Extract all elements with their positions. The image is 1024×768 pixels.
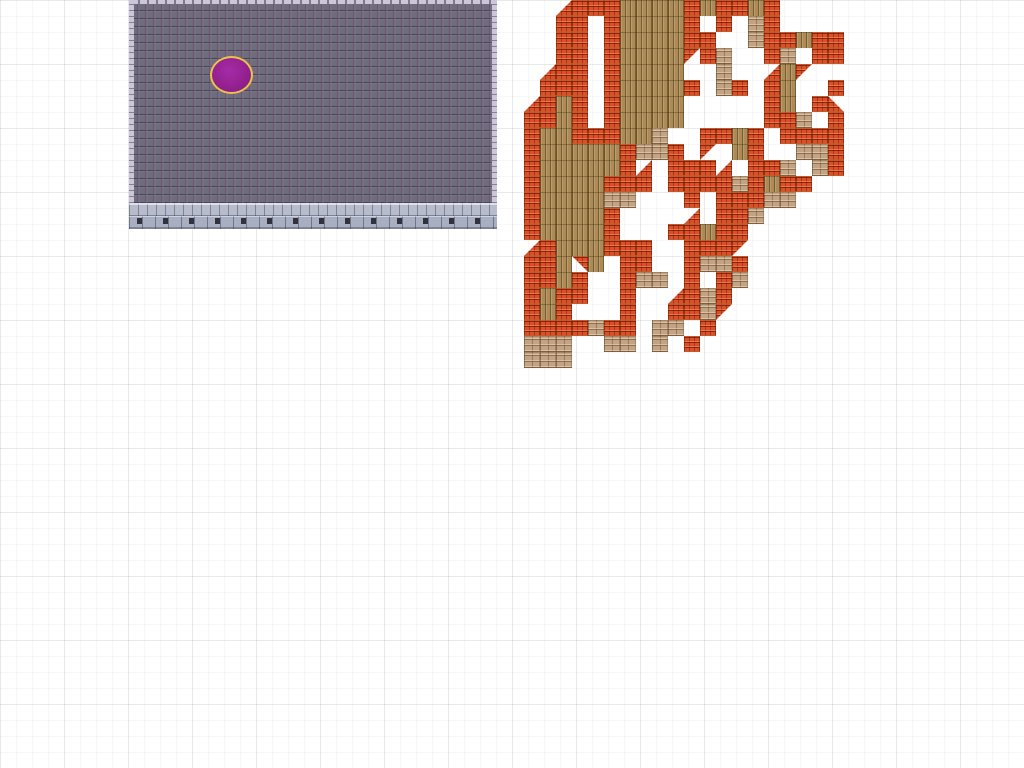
map-tile-empty — [812, 112, 828, 128]
wall-base-lower-course — [129, 216, 497, 229]
map-tile-orange-brick-roof — [572, 80, 588, 96]
map-tile-wood-planks — [572, 208, 588, 224]
map-tile-wood-planks — [556, 224, 572, 240]
map-tile-empty — [732, 160, 748, 176]
map-tile-empty — [572, 336, 588, 352]
map-tile-orange-brick-roof — [684, 80, 700, 96]
map-tile-empty — [764, 304, 780, 320]
map-tile-orange-brick-roof — [604, 16, 620, 32]
map-tile-empty — [796, 0, 812, 16]
map-tile-empty — [828, 352, 844, 368]
map-tile-orange-brick-roof — [764, 160, 780, 176]
map-tile-tan-stone-bricks — [604, 336, 620, 352]
map-tile-orange-brick-roof — [684, 304, 700, 320]
map-tile-wood-planks — [540, 192, 556, 208]
map-tile-tan-stone-bricks — [716, 64, 732, 80]
map-tile-brick-diagonal-cut-top-left — [524, 96, 540, 112]
map-tile-wood-planks — [556, 272, 572, 288]
map-tile-orange-brick-roof — [572, 272, 588, 288]
map-tile-orange-brick-roof — [524, 208, 540, 224]
map-tile-empty — [604, 304, 620, 320]
map-tile-orange-brick-roof — [524, 256, 540, 272]
map-tile-wood-planks — [636, 32, 652, 48]
map-tile-orange-brick-roof — [524, 288, 540, 304]
map-tile-empty — [828, 16, 844, 32]
map-tile-empty — [812, 256, 828, 272]
map-tile-empty — [780, 240, 796, 256]
map-tile-tan-stone-bricks — [748, 208, 764, 224]
map-tile-empty — [812, 352, 828, 368]
map-tile-wood-planks — [620, 96, 636, 112]
map-tile-empty — [748, 224, 764, 240]
map-tile-empty — [716, 336, 732, 352]
map-tile-orange-brick-roof — [604, 240, 620, 256]
map-tile-wood-planks — [652, 16, 668, 32]
map-tile-tan-stone-bricks — [764, 192, 780, 208]
map-tile-tan-stone-bricks — [668, 320, 684, 336]
map-tile-empty — [668, 240, 684, 256]
map-tile-empty — [764, 144, 780, 160]
map-tile-empty — [540, 0, 556, 16]
map-tile-orange-brick-roof — [748, 160, 764, 176]
map-tile-orange-brick-roof — [796, 128, 812, 144]
map-tile-orange-brick-roof — [796, 176, 812, 192]
map-tile-brick-diagonal-cut-bottom-right — [684, 48, 700, 64]
map-tile-orange-brick-roof — [524, 128, 540, 144]
map-tile-tan-stone-bricks — [652, 320, 668, 336]
map-tile-orange-brick-roof — [828, 160, 844, 176]
map-tile-empty — [780, 224, 796, 240]
map-tile-wood-planks — [652, 96, 668, 112]
map-tile-empty — [764, 256, 780, 272]
map-tile-empty — [668, 208, 684, 224]
map-tile-orange-brick-roof — [620, 320, 636, 336]
map-tile-orange-brick-roof — [556, 48, 572, 64]
map-tile-wood-planks — [556, 144, 572, 160]
map-tile-orange-brick-roof — [716, 208, 732, 224]
map-tile-wood-planks — [620, 16, 636, 32]
map-tile-empty — [780, 144, 796, 160]
map-tile-empty — [812, 320, 828, 336]
map-tile-orange-brick-roof — [764, 0, 780, 16]
map-tile-empty — [796, 192, 812, 208]
map-tile-empty — [796, 80, 812, 96]
map-tile-tan-stone-bricks — [620, 336, 636, 352]
map-tile-empty — [796, 48, 812, 64]
map-tile-empty — [700, 192, 716, 208]
map-tile-orange-brick-roof — [604, 0, 620, 16]
map-tile-orange-brick-roof — [572, 0, 588, 16]
map-tile-orange-brick-roof — [748, 128, 764, 144]
map-tile-orange-brick-roof — [604, 128, 620, 144]
map-tile-orange-brick-roof — [540, 256, 556, 272]
map-tile-empty — [812, 176, 828, 192]
map-tile-empty — [604, 352, 620, 368]
map-tile-empty — [812, 304, 828, 320]
map-tile-wood-planks — [636, 128, 652, 144]
map-tile-empty — [764, 320, 780, 336]
map-tile-wood-planks — [588, 224, 604, 240]
map-tile-orange-brick-roof — [700, 240, 716, 256]
map-tile-orange-brick-roof — [524, 224, 540, 240]
wall-left-edge — [129, 0, 134, 203]
map-tile-tan-stone-bricks — [620, 192, 636, 208]
map-tile-empty — [812, 16, 828, 32]
map-tile-empty — [796, 288, 812, 304]
map-tile-orange-brick-roof — [524, 304, 540, 320]
map-tile-orange-brick-roof — [748, 176, 764, 192]
map-tile-tan-stone-bricks — [556, 352, 572, 368]
map-tile-empty — [652, 192, 668, 208]
map-tile-tan-stone-bricks — [700, 256, 716, 272]
map-tile-empty — [668, 272, 684, 288]
map-tile-tan-stone-bricks — [796, 112, 812, 128]
map-tile-empty — [780, 16, 796, 32]
map-tile-orange-brick-roof — [732, 0, 748, 16]
map-tile-orange-brick-roof — [716, 0, 732, 16]
map-tile-orange-brick-roof — [572, 320, 588, 336]
map-tile-orange-brick-roof — [828, 80, 844, 96]
map-tile-wood-planks — [572, 144, 588, 160]
map-tile-empty — [812, 240, 828, 256]
map-tile-orange-brick-roof — [684, 16, 700, 32]
map-tile-tan-stone-bricks — [700, 288, 716, 304]
map-tile-empty — [828, 272, 844, 288]
map-tile-empty — [812, 208, 828, 224]
map-tile-empty — [668, 256, 684, 272]
map-tile-wood-planks — [748, 0, 764, 16]
map-tile-empty — [828, 304, 844, 320]
map-tile-empty — [748, 320, 764, 336]
map-tile-orange-brick-roof — [604, 112, 620, 128]
map-tile-empty — [588, 352, 604, 368]
map-tile-empty — [588, 64, 604, 80]
map-tile-empty — [636, 224, 652, 240]
map-tile-orange-brick-roof — [524, 272, 540, 288]
map-tile-wood-planks — [764, 176, 780, 192]
map-tile-empty — [732, 352, 748, 368]
map-tile-empty — [796, 320, 812, 336]
map-tile-empty — [700, 336, 716, 352]
map-tile-wood-planks — [620, 32, 636, 48]
map-tile-wood-planks — [572, 192, 588, 208]
map-tile-orange-brick-roof — [620, 256, 636, 272]
map-tile-orange-brick-roof — [700, 48, 716, 64]
map-tile-orange-brick-roof — [540, 320, 556, 336]
map-tile-wood-planks — [668, 48, 684, 64]
map-tile-empty — [588, 112, 604, 128]
map-tile-orange-brick-roof — [556, 320, 572, 336]
map-tile-orange-brick-roof — [572, 288, 588, 304]
map-tile-wood-planks — [588, 240, 604, 256]
map-tile-empty — [636, 304, 652, 320]
map-tile-orange-brick-roof — [556, 64, 572, 80]
map-tile-wood-planks — [540, 208, 556, 224]
map-tile-brick-diagonal-cut-bottom-right — [732, 240, 748, 256]
map-tile-empty — [780, 320, 796, 336]
map-tile-wood-planks — [540, 144, 556, 160]
wall-base-upper-course — [129, 203, 497, 216]
map-tile-empty — [732, 320, 748, 336]
map-tile-empty — [652, 160, 668, 176]
map-tile-empty — [588, 96, 604, 112]
map-tile-wood-planks — [636, 112, 652, 128]
map-tile-tan-stone-bricks — [652, 336, 668, 352]
map-tile-orange-brick-roof — [572, 64, 588, 80]
map-tile-wood-planks — [572, 224, 588, 240]
map-tile-orange-brick-roof — [524, 160, 540, 176]
map-tile-empty — [748, 256, 764, 272]
map-tile-wood-planks — [780, 96, 796, 112]
map-tile-wood-planks — [668, 16, 684, 32]
map-tile-empty — [828, 320, 844, 336]
map-tile-tan-stone-bricks — [540, 336, 556, 352]
map-tile-empty — [604, 256, 620, 272]
map-tile-wood-planks — [540, 176, 556, 192]
map-tile-empty — [588, 272, 604, 288]
map-tile-empty — [748, 336, 764, 352]
map-tile-empty — [780, 336, 796, 352]
map-tile-empty — [716, 352, 732, 368]
map-tile-empty — [652, 304, 668, 320]
map-tile-tan-stone-bricks — [540, 352, 556, 368]
map-tile-orange-brick-roof — [524, 112, 540, 128]
map-tile-orange-brick-roof — [540, 112, 556, 128]
map-tile-wood-planks — [652, 0, 668, 16]
map-tile-orange-brick-roof — [828, 144, 844, 160]
map-tile-empty — [524, 64, 540, 80]
map-tile-orange-brick-roof — [604, 208, 620, 224]
map-tile-wood-planks — [540, 304, 556, 320]
map-tile-wood-planks — [588, 256, 604, 272]
map-tile-orange-brick-roof — [716, 240, 732, 256]
wall-brick-fill — [129, 0, 497, 203]
map-tile-wood-planks — [556, 240, 572, 256]
map-tile-empty — [716, 112, 732, 128]
map-tile-empty — [636, 352, 652, 368]
map-tile-orange-brick-roof — [764, 16, 780, 32]
map-tile-wood-planks — [588, 192, 604, 208]
map-tile-empty — [748, 352, 764, 368]
map-tile-orange-brick-roof — [540, 96, 556, 112]
map-tile-wood-planks — [636, 80, 652, 96]
map-tile-brick-diagonal-cut-top-left — [668, 288, 684, 304]
map-tile-empty — [652, 224, 668, 240]
map-tile-wood-planks — [620, 80, 636, 96]
map-tile-wood-planks — [636, 16, 652, 32]
map-tile-tan-stone-bricks — [780, 48, 796, 64]
map-tile-orange-brick-roof — [716, 192, 732, 208]
map-tile-empty — [524, 32, 540, 48]
map-tile-empty — [812, 80, 828, 96]
map-tile-wood-planks — [700, 0, 716, 16]
map-tile-empty — [572, 352, 588, 368]
map-tile-empty — [604, 272, 620, 288]
map-tile-empty — [796, 160, 812, 176]
map-tile-orange-brick-roof — [684, 32, 700, 48]
map-tile-empty — [828, 192, 844, 208]
map-tile-empty — [732, 48, 748, 64]
map-tile-tan-stone-bricks — [732, 176, 748, 192]
map-tile-brick-diagonal-cut-top-left — [764, 64, 780, 80]
map-tile-empty — [684, 352, 700, 368]
map-tile-tan-stone-bricks — [716, 256, 732, 272]
map-tile-orange-brick-roof — [684, 0, 700, 16]
map-tile-orange-brick-roof — [732, 256, 748, 272]
map-tile-wood-planks — [604, 144, 620, 160]
map-tile-orange-brick-roof — [684, 288, 700, 304]
map-tile-orange-brick-roof — [572, 48, 588, 64]
map-tile-empty — [588, 336, 604, 352]
map-tile-orange-brick-roof — [556, 304, 572, 320]
map-tile-empty — [732, 112, 748, 128]
map-tile-orange-brick-roof — [732, 208, 748, 224]
purple-ellipse-object[interactable] — [210, 56, 253, 94]
map-tile-orange-brick-roof — [620, 160, 636, 176]
map-tile-brick-diagonal-cut-bottom-right — [700, 144, 716, 160]
map-tile-orange-brick-roof — [828, 112, 844, 128]
map-tile-tan-stone-bricks — [812, 144, 828, 160]
map-tile-orange-brick-roof — [604, 48, 620, 64]
map-tile-orange-brick-roof — [668, 224, 684, 240]
map-tile-empty — [796, 256, 812, 272]
map-tile-orange-brick-roof — [668, 304, 684, 320]
map-tile-wood-planks — [668, 80, 684, 96]
map-tile-orange-brick-roof — [668, 144, 684, 160]
map-tile-orange-brick-roof — [540, 240, 556, 256]
map-tile-wood-planks — [652, 32, 668, 48]
map-tile-tan-stone-bricks — [780, 192, 796, 208]
map-tile-empty — [700, 16, 716, 32]
map-tile-orange-brick-roof — [764, 48, 780, 64]
map-tile-tan-stone-bricks — [524, 336, 540, 352]
map-tile-orange-brick-roof — [604, 32, 620, 48]
map-tile-tan-stone-bricks — [636, 272, 652, 288]
map-tile-wood-planks — [572, 160, 588, 176]
map-tile-orange-brick-roof — [636, 256, 652, 272]
map-tile-wood-planks — [604, 160, 620, 176]
map-tile-orange-brick-roof — [700, 320, 716, 336]
map-tile-empty — [780, 304, 796, 320]
map-tile-empty — [732, 96, 748, 112]
map-tile-orange-brick-roof — [684, 176, 700, 192]
map-tile-wood-planks — [636, 0, 652, 16]
map-tile-wood-planks — [780, 80, 796, 96]
map-tile-wood-planks — [556, 208, 572, 224]
roof-tiles-chunk[interactable] — [524, 0, 844, 368]
stone-wall-chunk[interactable] — [129, 0, 497, 229]
map-tile-orange-brick-roof — [556, 32, 572, 48]
map-tile-orange-brick-roof — [604, 176, 620, 192]
map-tile-wood-planks — [668, 0, 684, 16]
map-tile-empty — [700, 352, 716, 368]
map-tile-tan-stone-bricks — [716, 80, 732, 96]
map-tile-empty — [780, 288, 796, 304]
map-tile-empty — [572, 304, 588, 320]
map-tile-wood-planks — [668, 32, 684, 48]
map-tile-empty — [764, 272, 780, 288]
map-tile-orange-brick-roof — [684, 192, 700, 208]
map-tile-empty — [764, 224, 780, 240]
map-tile-orange-brick-roof — [668, 160, 684, 176]
map-tile-orange-brick-roof — [732, 224, 748, 240]
map-tile-empty — [748, 64, 764, 80]
map-tile-wood-planks — [636, 48, 652, 64]
map-tile-orange-brick-roof — [828, 32, 844, 48]
map-tile-orange-brick-roof — [764, 96, 780, 112]
map-tile-empty — [812, 64, 828, 80]
map-tile-orange-brick-roof — [572, 128, 588, 144]
map-tile-orange-brick-roof — [700, 32, 716, 48]
map-tile-empty — [700, 112, 716, 128]
map-tile-orange-brick-roof — [572, 96, 588, 112]
map-tile-empty — [716, 144, 732, 160]
map-tile-empty — [732, 16, 748, 32]
map-tile-empty — [668, 128, 684, 144]
map-tile-orange-brick-roof — [716, 16, 732, 32]
map-tile-empty — [796, 336, 812, 352]
map-tile-orange-brick-roof — [716, 224, 732, 240]
map-tile-orange-brick-roof — [620, 304, 636, 320]
map-tile-orange-brick-roof — [604, 80, 620, 96]
map-tile-empty — [732, 32, 748, 48]
map-tile-wood-planks — [668, 64, 684, 80]
map-tile-orange-brick-roof — [780, 128, 796, 144]
map-tile-wood-planks — [620, 0, 636, 16]
map-tile-empty — [828, 176, 844, 192]
map-tile-empty — [684, 64, 700, 80]
map-tile-orange-brick-roof — [684, 256, 700, 272]
map-tile-wood-planks — [780, 64, 796, 80]
map-tile-empty — [796, 208, 812, 224]
map-tile-tan-stone-bricks — [700, 304, 716, 320]
map-tile-orange-brick-roof — [716, 176, 732, 192]
map-tile-empty — [828, 0, 844, 16]
map-tile-empty — [636, 192, 652, 208]
map-tile-orange-brick-roof — [732, 192, 748, 208]
map-tile-orange-brick-roof — [764, 80, 780, 96]
map-tile-empty — [652, 352, 668, 368]
map-tile-empty — [700, 208, 716, 224]
map-tile-orange-brick-roof — [812, 96, 828, 112]
map-tile-brick-diagonal-cut-bottom-right — [796, 64, 812, 80]
map-tile-empty — [828, 288, 844, 304]
map-tile-empty — [588, 48, 604, 64]
map-tile-empty — [764, 208, 780, 224]
map-tile-orange-brick-roof — [716, 128, 732, 144]
map-canvas[interactable] — [0, 0, 1024, 768]
map-tile-wood-planks — [588, 144, 604, 160]
map-tile-orange-brick-roof — [684, 240, 700, 256]
map-tile-brick-diagonal-cut-top-left — [556, 0, 572, 16]
map-tile-empty — [588, 16, 604, 32]
map-tile-empty — [732, 336, 748, 352]
map-tile-wood-planks — [652, 80, 668, 96]
map-tile-wood-planks — [732, 128, 748, 144]
map-tile-empty — [636, 288, 652, 304]
map-tile-empty — [668, 336, 684, 352]
map-tile-empty — [716, 320, 732, 336]
map-tile-orange-brick-roof — [716, 272, 732, 288]
map-tile-orange-brick-roof — [748, 192, 764, 208]
map-tile-orange-brick-roof — [700, 160, 716, 176]
map-tile-empty — [780, 208, 796, 224]
map-tile-wood-planks — [556, 160, 572, 176]
map-tile-tan-stone-bricks — [748, 16, 764, 32]
map-tile-empty — [700, 64, 716, 80]
map-tile-empty — [716, 96, 732, 112]
map-tile-empty — [812, 0, 828, 16]
